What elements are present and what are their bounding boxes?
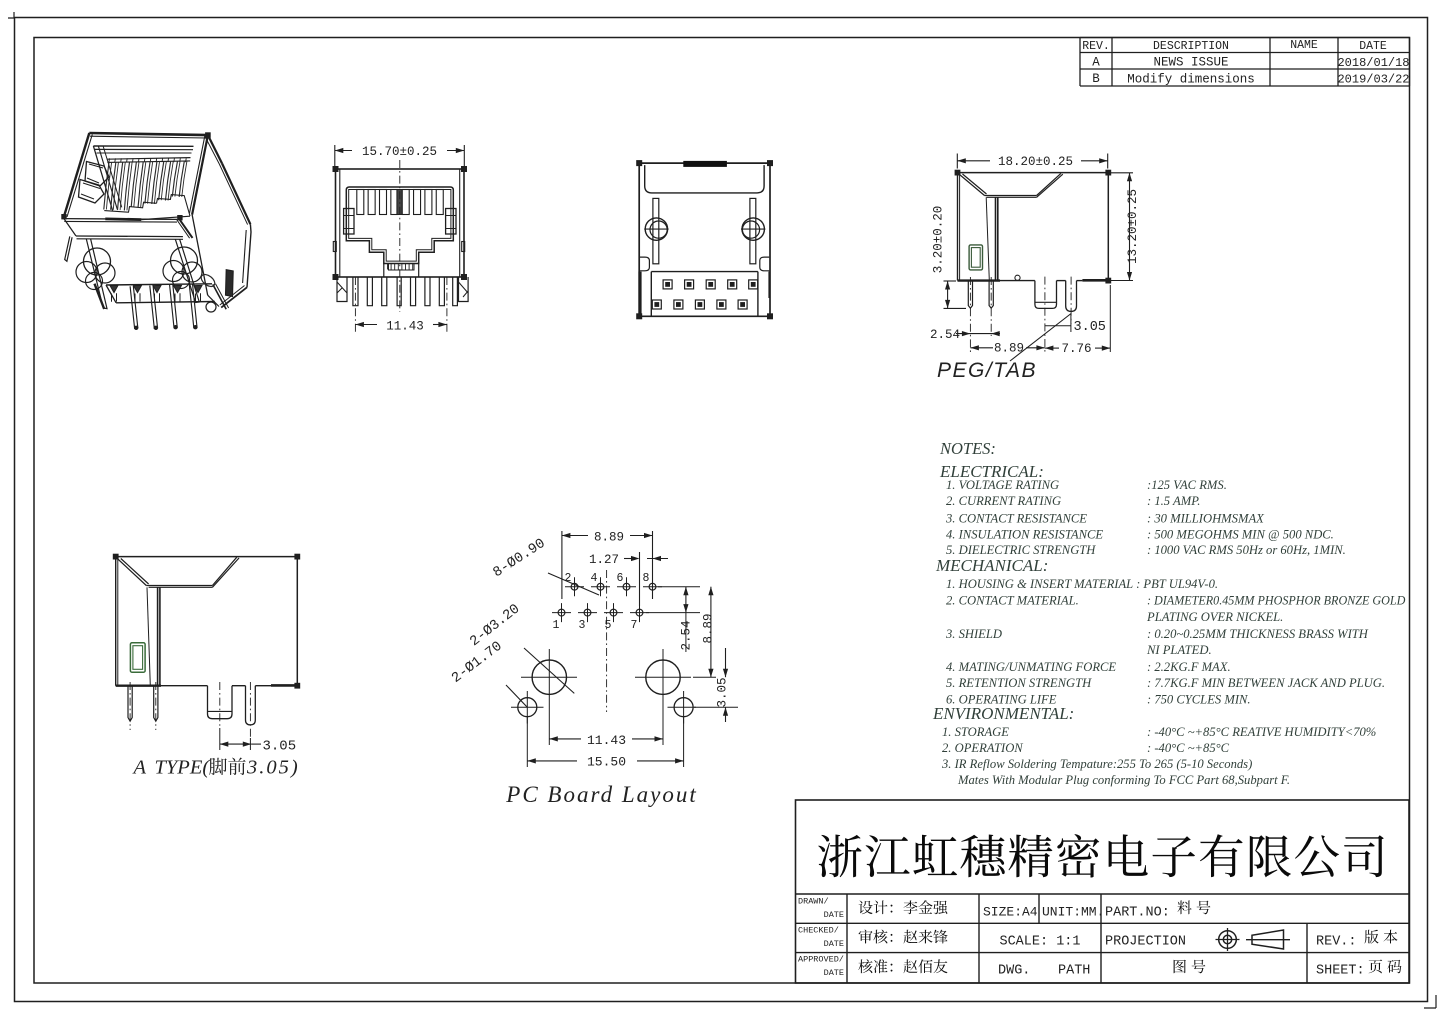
- svg-text:8-Ø0.90: 8-Ø0.90: [490, 536, 548, 581]
- svg-text:DATE: DATE: [824, 910, 844, 920]
- svg-text:3.05: 3.05: [263, 739, 297, 755]
- svg-text:MECHANICAL:: MECHANICAL:: [935, 556, 1048, 575]
- svg-text:SCALE: 1:1: SCALE: 1:1: [999, 935, 1080, 950]
- svg-text:Mates With Modular Plug confor: Mates With Modular Plug conforming To FC…: [957, 773, 1290, 787]
- svg-text:11.43: 11.43: [386, 320, 424, 334]
- svg-text:7.76: 7.76: [1061, 342, 1091, 356]
- svg-text:8.89: 8.89: [702, 613, 716, 643]
- svg-text:DATE: DATE: [824, 939, 844, 949]
- svg-text:8: 8: [643, 572, 650, 585]
- svg-text:6: 6: [617, 572, 624, 585]
- svg-text:TYPE(: TYPE(: [155, 757, 211, 779]
- svg-text:REV.:: REV.:: [1316, 935, 1357, 950]
- svg-text:: 2.2KG.F MAX.: : 2.2KG.F MAX.: [1147, 660, 1231, 674]
- svg-text:1: 1: [553, 619, 560, 632]
- svg-text:APPROVED/: APPROVED/: [798, 955, 844, 965]
- svg-text:5: 5: [605, 619, 612, 632]
- svg-text:PEG/TAB: PEG/TAB: [937, 359, 1037, 382]
- svg-text:NAME: NAME: [1290, 39, 1318, 52]
- svg-text:3.05: 3.05: [716, 677, 730, 707]
- svg-text:3.05): 3.05): [246, 757, 300, 779]
- svg-text:2.54: 2.54: [930, 328, 960, 342]
- svg-text:3: 3: [579, 619, 586, 632]
- svg-text:2. OPERATION: 2. OPERATION: [942, 741, 1023, 755]
- svg-text:PROJECTION: PROJECTION: [1105, 935, 1186, 950]
- svg-text:1. STORAGE: 1. STORAGE: [942, 725, 1009, 739]
- svg-text:SHEET:: SHEET:: [1316, 964, 1365, 979]
- svg-text:: -40°C ~+85°C REATIVE HUMIDIT: : -40°C ~+85°C REATIVE HUMIDITY<70%: [1147, 725, 1376, 739]
- svg-text:ENVIRONMENTAL:: ENVIRONMENTAL:: [932, 704, 1074, 723]
- svg-text:SIZE:A4: SIZE:A4: [983, 905, 1038, 920]
- svg-text:15.70±0.25: 15.70±0.25: [362, 145, 437, 159]
- svg-text:REV.: REV.: [1082, 40, 1110, 53]
- svg-text:13.20±0.25: 13.20±0.25: [1126, 189, 1140, 264]
- svg-text:NI PLATED.: NI PLATED.: [1146, 643, 1212, 657]
- svg-text::125 VAC RMS.: :125 VAC RMS.: [1147, 478, 1227, 492]
- svg-text:4: 4: [591, 572, 598, 585]
- svg-text:8.89: 8.89: [594, 531, 624, 545]
- svg-text:UNIT:MM.: UNIT:MM.: [1042, 905, 1104, 920]
- svg-text:PART.NO:: PART.NO:: [1105, 906, 1170, 921]
- svg-text:NEWS ISSUE: NEWS ISSUE: [1153, 56, 1228, 70]
- svg-text:4. MATING/UNMATING FORCE: 4. MATING/UNMATING FORCE: [946, 660, 1116, 674]
- svg-text:DRAWN/: DRAWN/: [798, 897, 829, 907]
- svg-text:5. DIELECTRIC STRENGTH: 5. DIELECTRIC STRENGTH: [946, 543, 1096, 557]
- svg-text:3.20±0.20: 3.20±0.20: [932, 206, 946, 274]
- svg-text:PLATING OVER NICKEL.: PLATING OVER NICKEL.: [1146, 610, 1283, 624]
- svg-text:1. HOUSING & INSERT MATERIAL: 1. HOUSING & INSERT MATERIAL : PBT UL94V…: [946, 577, 1218, 591]
- svg-text:: 1.5 AMP.: : 1.5 AMP.: [1147, 494, 1200, 508]
- svg-text:3. IR Reflow Soldering Tempatu: 3. IR Reflow Soldering Tempature:255 To …: [941, 757, 1252, 771]
- svg-text:3. SHIELD: 3. SHIELD: [945, 627, 1002, 641]
- svg-text:2018/01/18: 2018/01/18: [1337, 56, 1409, 70]
- svg-text:4. INSULATION RESISTANCE: 4. INSULATION RESISTANCE: [946, 528, 1103, 542]
- svg-text:15.50: 15.50: [587, 755, 626, 770]
- svg-text:: 7.7KG.F MIN BETWEEN JACK AND: : 7.7KG.F MIN BETWEEN JACK AND PLUG.: [1147, 676, 1385, 690]
- svg-text:: -40°C ~+85°C: : -40°C ~+85°C: [1147, 741, 1230, 755]
- svg-text:1. VOLTAGE RATING: 1. VOLTAGE RATING: [946, 478, 1059, 492]
- svg-text:NOTES:: NOTES:: [939, 439, 996, 458]
- svg-text:PC Board Layout: PC Board Layout: [505, 782, 697, 807]
- svg-text:: DIAMETER0.45MM PHOSPHOR BRON: : DIAMETER0.45MM PHOSPHOR BRONZE GOLD: [1147, 594, 1406, 608]
- svg-text:: 0.20~0.25MM THICKNESS BRASS: : 0.20~0.25MM THICKNESS BRASS WITH: [1147, 627, 1369, 641]
- svg-text:11.43: 11.43: [587, 733, 626, 748]
- svg-text:7: 7: [631, 619, 638, 632]
- svg-text:3. CONTACT RESISTANCE: 3. CONTACT RESISTANCE: [945, 512, 1087, 526]
- svg-text:DWG.: DWG.: [998, 964, 1030, 979]
- svg-text:: 750 CYCLES MIN.: : 750 CYCLES MIN.: [1147, 693, 1251, 707]
- svg-text:2.54: 2.54: [680, 620, 694, 650]
- svg-text:B: B: [1092, 72, 1100, 86]
- svg-text:: 30 MILLIOHMSMAX: : 30 MILLIOHMSMAX: [1147, 512, 1265, 526]
- svg-text:: 500 MEGOHMS MIN @ 500 NDC.: : 500 MEGOHMS MIN @ 500 NDC.: [1147, 528, 1334, 542]
- svg-text:DESCRIPTION: DESCRIPTION: [1153, 40, 1229, 53]
- svg-text:: 1000 VAC RMS 50Hz or 60Hz,: : 1000 VAC RMS 50Hz or 60Hz, 1MIN.: [1147, 543, 1346, 557]
- svg-text:2. CONTACT MATERIAL.: 2. CONTACT MATERIAL.: [946, 594, 1079, 608]
- svg-text:DATE: DATE: [824, 968, 844, 978]
- svg-text:DATE: DATE: [1359, 40, 1387, 53]
- svg-text:CHECKED/: CHECKED/: [798, 926, 839, 936]
- svg-text:5. RETENTION STRENGTH: 5. RETENTION STRENGTH: [946, 676, 1092, 690]
- svg-text:PATH: PATH: [1058, 964, 1090, 979]
- svg-text:A: A: [132, 757, 147, 779]
- svg-text:3.05: 3.05: [1074, 320, 1106, 335]
- svg-text:18.20±0.25: 18.20±0.25: [998, 155, 1073, 169]
- svg-text:Modify dimensions: Modify dimensions: [1127, 73, 1255, 87]
- svg-text:A: A: [1092, 56, 1100, 70]
- svg-text:2. CURRENT RATING: 2. CURRENT RATING: [946, 494, 1061, 508]
- svg-text:2019/03/22: 2019/03/22: [1337, 73, 1409, 87]
- svg-text:1.27: 1.27: [589, 553, 619, 567]
